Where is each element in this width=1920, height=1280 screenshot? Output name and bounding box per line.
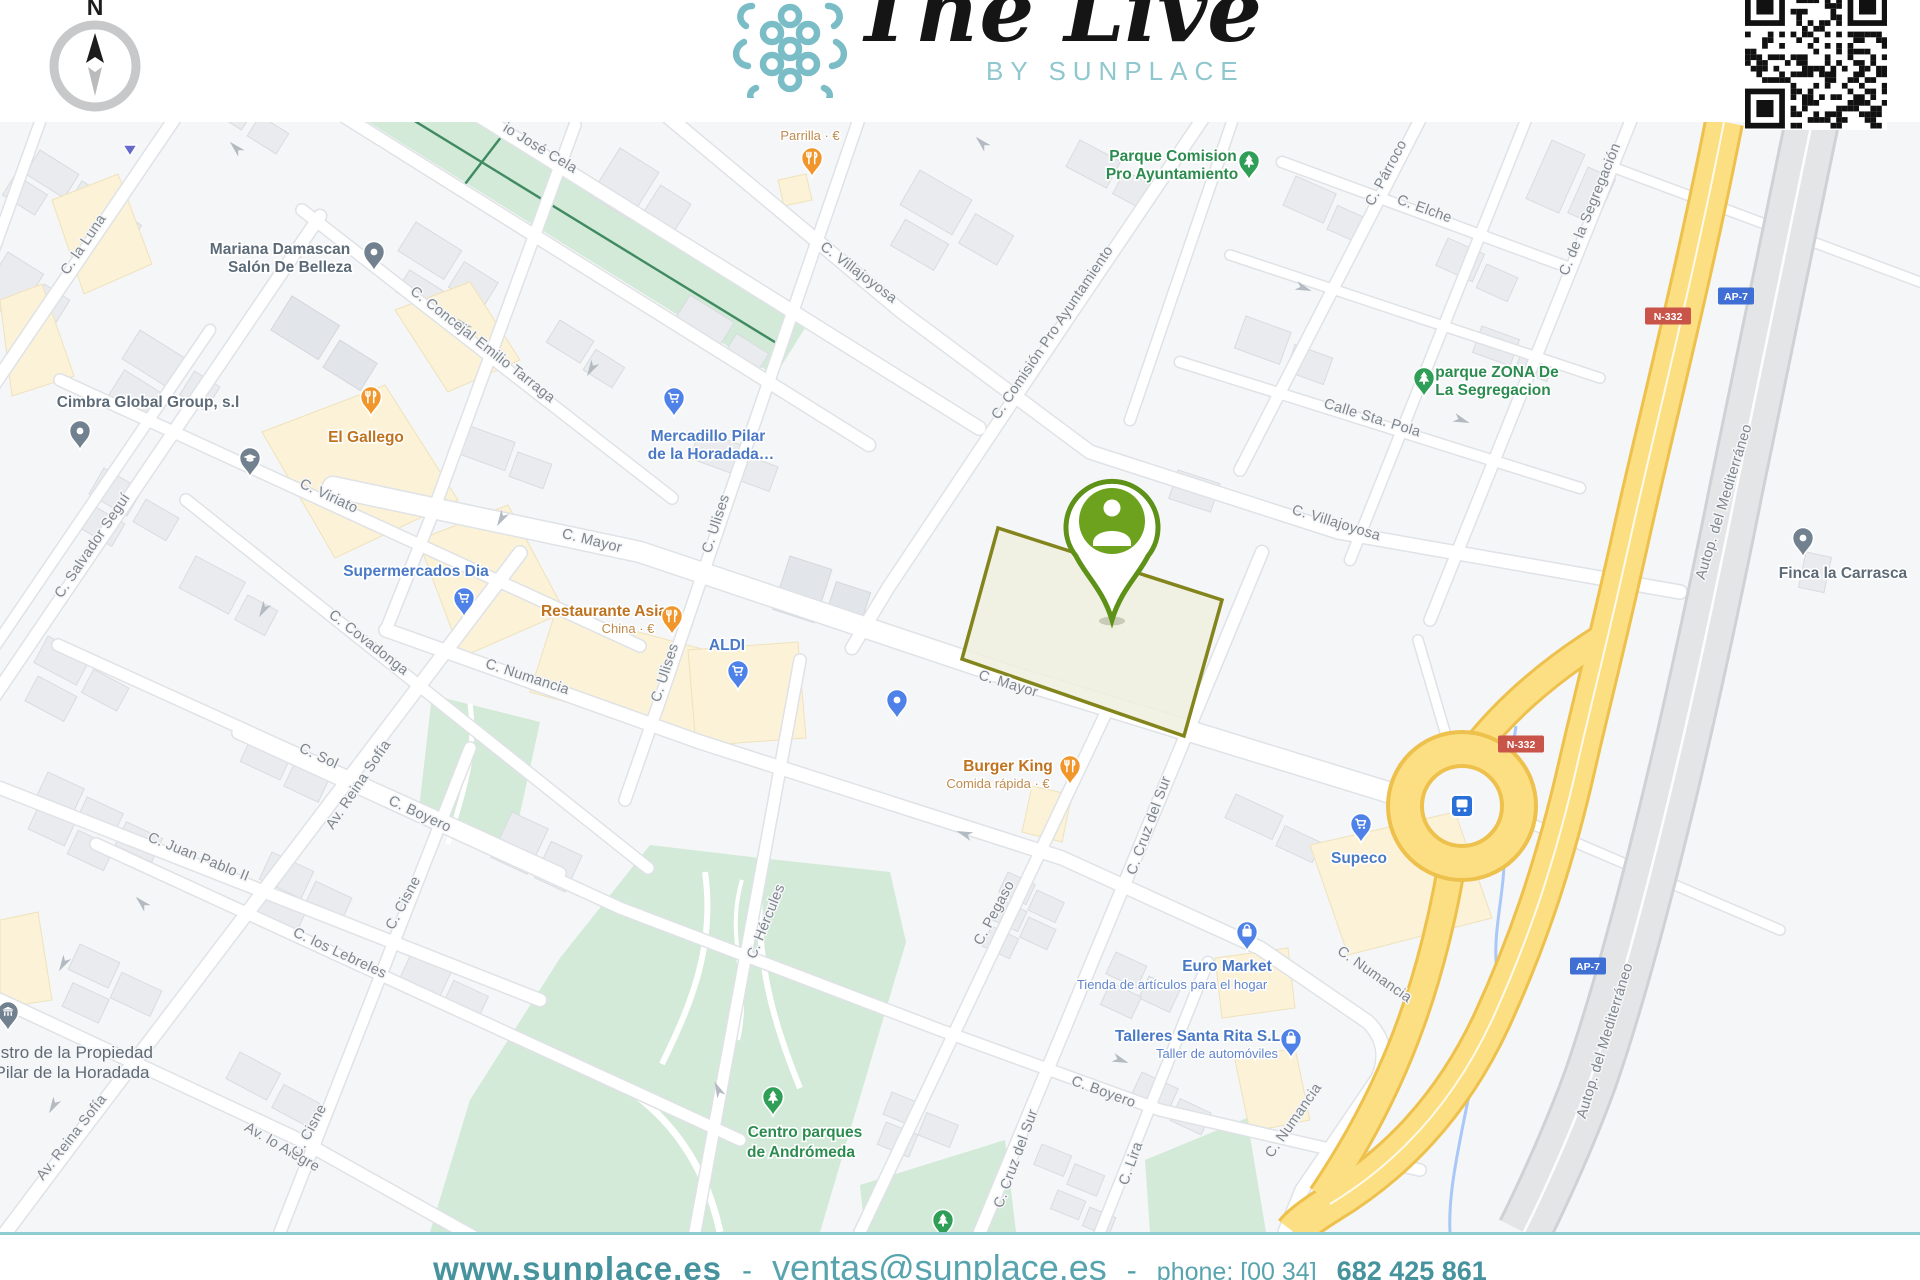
compass-north-label: N: [87, 0, 104, 20]
footer: www.sunplace.es - ventas@sunplace.es - p…: [0, 1232, 1920, 1280]
flyer-page: N The Live BY SUNPLACE: [0, 0, 1920, 1280]
poi-label[interactable]: Mercadillo Pilar: [651, 428, 766, 445]
poi-label[interactable]: Comida rápida · €: [946, 776, 1050, 791]
poi-label[interactable]: Supeco: [1331, 850, 1387, 867]
road-shield-ap-7: AP-7: [1570, 958, 1606, 975]
poi-label[interactable]: China · €: [602, 621, 656, 636]
separator: -: [742, 1254, 752, 1280]
road-shield-n-332: N-332: [1498, 736, 1544, 753]
map-land: [0, 122, 1920, 1232]
poi-label[interactable]: istro de la Propiedad: [0, 1043, 153, 1062]
poi-label[interactable]: de la Horadada…: [648, 446, 775, 463]
poi-label[interactable]: Mariana Damascan: [210, 241, 350, 258]
qr-code: [1745, 0, 1887, 130]
poi-pin-tree-icon[interactable]: [933, 1210, 954, 1233]
svg-text:N-332: N-332: [1507, 739, 1536, 751]
map-canvas[interactable]: N-332AP-7N-332AP-7 C. la LunaC. Salvador…: [0, 122, 1920, 1232]
poi-label[interactable]: Supermercados Dia: [343, 563, 489, 580]
poi-label[interactable]: de Andrómeda: [747, 1144, 855, 1161]
poi-label[interactable]: Parrilla · €: [780, 128, 840, 143]
poi-label[interactable]: Finca la Carrasca: [1779, 565, 1908, 582]
phone-number[interactable]: 682 425 861: [1337, 1256, 1487, 1280]
poi-label[interactable]: Centro parques: [748, 1124, 863, 1141]
header: N The Live BY SUNPLACE: [0, 0, 1920, 122]
phone-label: phone: [00 34]: [1157, 1258, 1317, 1280]
poi-label[interactable]: Cimbra Global Group, s.l: [57, 394, 240, 411]
poi-label[interactable]: Parque Comision: [1109, 148, 1236, 165]
brand-title: The Live: [853, 0, 1262, 55]
poi-label[interactable]: Talleres Santa Rita S.L: [1115, 1028, 1281, 1045]
poi-label[interactable]: Taller de automóviles: [1156, 1046, 1279, 1061]
poi-label[interactable]: Tienda de artículos para el hogar: [1077, 977, 1268, 992]
svg-text:AP-7: AP-7: [1724, 291, 1748, 303]
poi-label[interactable]: Burger King: [963, 758, 1053, 775]
poi-label[interactable]: Pro Ayuntamiento: [1106, 166, 1238, 183]
website-link[interactable]: www.sunplace.es: [433, 1250, 722, 1280]
contact-line: www.sunplace.es - ventas@sunplace.es - p…: [0, 1247, 1920, 1280]
poi-label[interactable]: parque ZONA De: [1435, 364, 1559, 381]
svg-text:N-332: N-332: [1654, 311, 1683, 323]
transit-station-icon[interactable]: [1451, 795, 1473, 817]
brand-ornament-icon: [726, 0, 850, 98]
separator: -: [1127, 1254, 1137, 1280]
poi-label[interactable]: Euro Market: [1182, 958, 1272, 975]
poi-label[interactable]: La Segregacion: [1435, 382, 1550, 399]
compass-icon: N: [0, 0, 190, 122]
poi-label[interactable]: Restaurante Asia: [541, 603, 667, 620]
poi-label[interactable]: El Gallego: [328, 429, 404, 446]
road-shield-n-332: N-332: [1645, 308, 1691, 325]
poi-label[interactable]: Salón De Belleza: [228, 259, 352, 276]
poi-label[interactable]: ALDI: [709, 637, 745, 654]
email-link[interactable]: ventas@sunplace.es: [772, 1247, 1107, 1280]
svg-text:AP-7: AP-7: [1576, 961, 1600, 973]
brand-subtitle: BY SUNPLACE: [986, 56, 1245, 87]
road-shield-ap-7: AP-7: [1718, 288, 1754, 305]
poi-label[interactable]: Pilar de la Horadada: [0, 1063, 150, 1082]
